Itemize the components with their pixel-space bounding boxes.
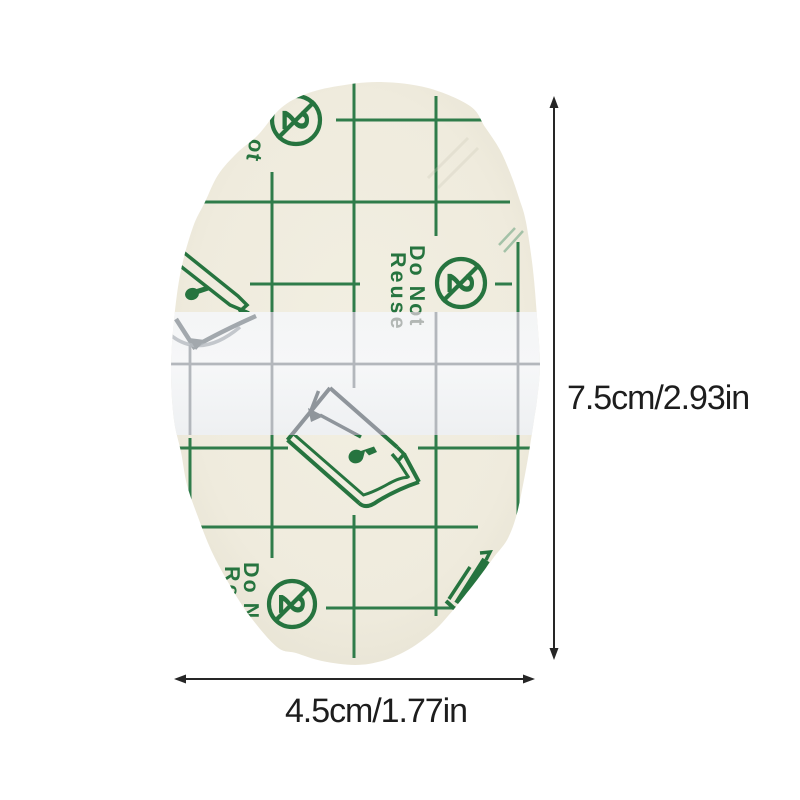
svg-text:4.5cm/1.77in: 4.5cm/1.77in	[285, 692, 467, 730]
svg-text:7.5cm/2.93in: 7.5cm/2.93in	[567, 379, 749, 417]
